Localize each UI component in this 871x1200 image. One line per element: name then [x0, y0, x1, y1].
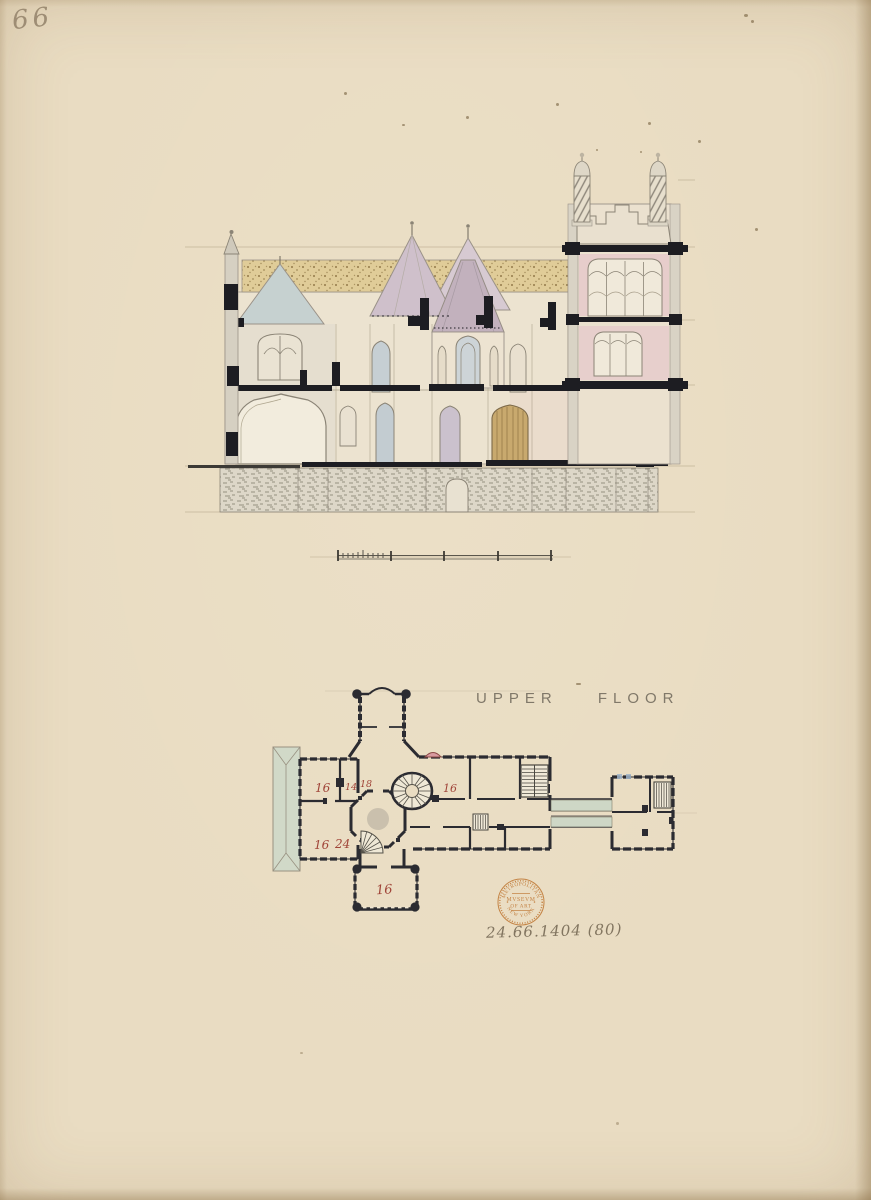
scanned-drawing-page: 66 — [0, 0, 871, 1200]
room-number: 18 — [360, 779, 372, 790]
tower-window-small — [594, 332, 642, 376]
west-roof-annex — [273, 747, 300, 871]
tower-window-large — [588, 259, 662, 316]
room-number: 16 — [315, 781, 331, 795]
room-number: 24 — [334, 837, 350, 851]
folio-number: 66 — [11, 2, 55, 36]
wooden-door — [492, 405, 528, 464]
room-number: 14 — [345, 782, 357, 793]
left-buttress — [224, 230, 239, 464]
page-edge-left — [0, 0, 7, 1200]
section-drawing — [180, 148, 700, 518]
plan-guides — [325, 691, 697, 813]
stamp-center-line2: OF ART — [510, 904, 532, 910]
floor-plan-drawing: 16 14 18 16 16 24 16 — [265, 681, 705, 923]
east-corridor — [551, 800, 612, 827]
octagon-centre-wash — [367, 808, 389, 830]
stair-east-block — [654, 782, 671, 808]
room-number: 16 — [314, 838, 330, 852]
right-tower — [562, 153, 688, 464]
scale-bar — [308, 547, 573, 565]
stamp-center-line1: MVSEVM — [506, 897, 535, 903]
stair-east-wing — [521, 765, 548, 797]
accession-number: 24.66.1404 (80) — [486, 920, 623, 942]
cellar-door — [446, 479, 468, 512]
met-museum-stamp: METROPOLITAN NEW YORK MVSEVM OF ART — [496, 877, 546, 927]
page-edge-bottom — [0, 1188, 871, 1200]
room-number: 16 — [376, 882, 394, 898]
spiral-stair — [392, 773, 432, 809]
stair-small — [473, 814, 488, 830]
room-number: 16 — [443, 782, 457, 795]
winder-stair — [361, 831, 383, 853]
foundation — [220, 468, 658, 512]
page-edge-right — [855, 0, 871, 1200]
central-lantern — [432, 332, 504, 388]
page-edge-top — [0, 0, 871, 7]
pink-bay-window — [425, 753, 441, 758]
plan-walls — [300, 688, 673, 909]
